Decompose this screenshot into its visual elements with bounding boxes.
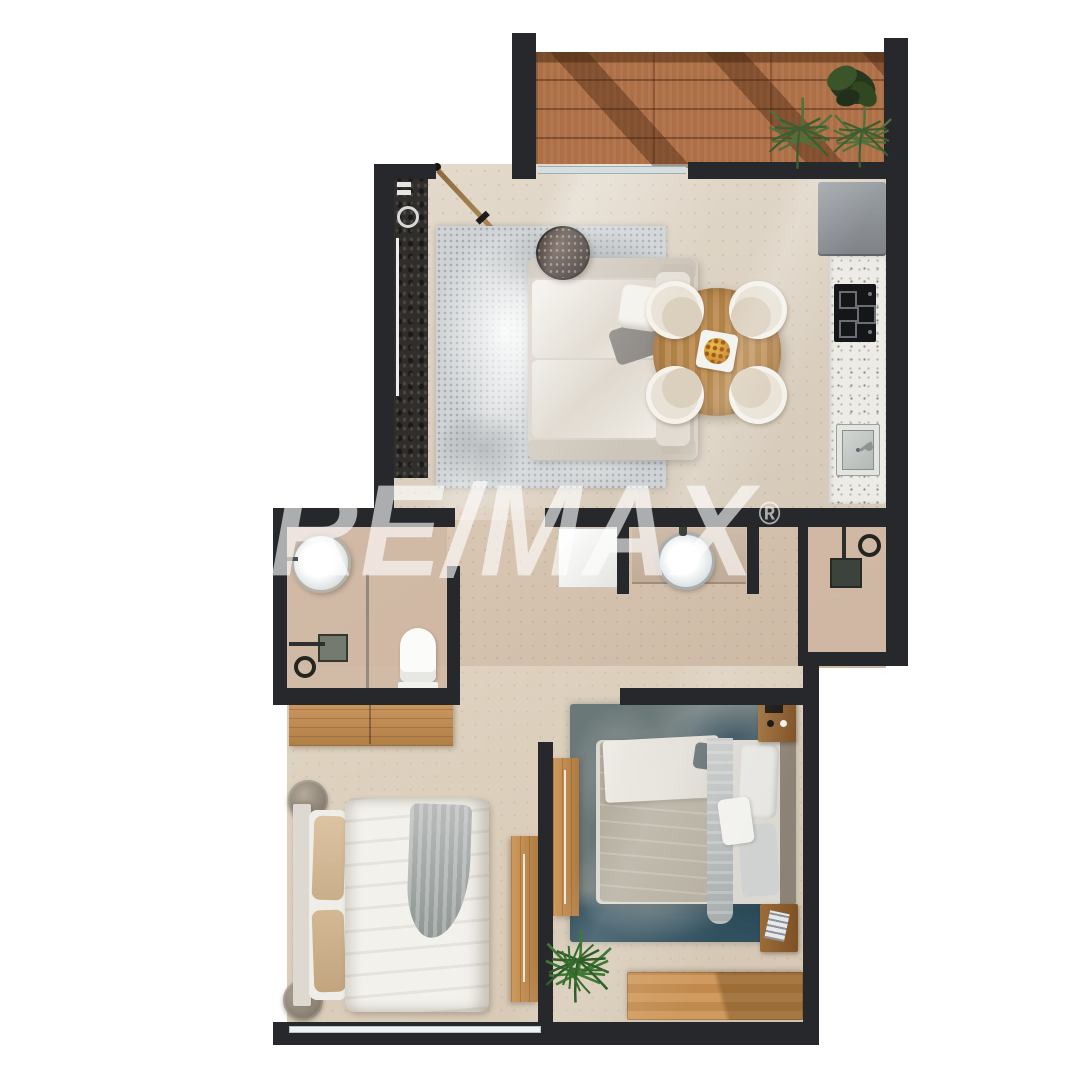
- chair-seat: [662, 368, 702, 408]
- wall: [886, 508, 908, 666]
- nightstand: [760, 904, 798, 952]
- cooktop: [834, 284, 876, 342]
- terrace-deck: [536, 52, 884, 168]
- bed2-headboard: [780, 738, 796, 904]
- media-shelf: [397, 190, 411, 195]
- wall: [886, 170, 908, 520]
- tv-screen: [396, 238, 399, 396]
- terrace-post-left: [512, 33, 536, 179]
- dining-chair: [729, 366, 787, 424]
- dining-chair: [729, 281, 787, 339]
- shower-knob: [294, 656, 316, 678]
- nightstand-items: [767, 720, 774, 727]
- nightstand-items: [765, 704, 783, 713]
- wall: [798, 524, 808, 666]
- watermark-brand: RE/MAX: [270, 458, 756, 604]
- dining-chair: [646, 281, 704, 339]
- bench-shade: [627, 972, 803, 1020]
- bedroom1-window: [289, 1026, 541, 1033]
- wall: [688, 162, 888, 179]
- chair-seat: [731, 297, 771, 337]
- burner: [839, 291, 857, 309]
- wall: [620, 688, 803, 705]
- chair-seat: [662, 297, 702, 337]
- dinner-plate: [695, 329, 739, 373]
- bed1-pillow: [312, 815, 347, 900]
- shower-drain: [318, 634, 348, 662]
- kitchen-sink: [836, 424, 880, 476]
- chair-seat: [731, 368, 771, 408]
- cooktop-knob: [868, 330, 872, 334]
- bedroom2-bench: [627, 972, 803, 1020]
- rain-shower-head: [830, 558, 862, 588]
- remax-watermark: RE/MAX®: [270, 462, 781, 599]
- bedroom1-dresser: [511, 836, 539, 1002]
- dresser-handle-line: [523, 854, 525, 982]
- side-table: [536, 226, 590, 280]
- wardrobe-divider-line: [369, 704, 371, 744]
- wall: [538, 742, 553, 1025]
- bed1-pillow: [312, 909, 347, 992]
- bed1: [293, 798, 489, 1012]
- bed2: [596, 736, 798, 908]
- burner: [839, 320, 857, 338]
- media-shelf: [397, 182, 411, 187]
- shower-arm: [289, 642, 325, 646]
- fruit-bowl: [702, 336, 732, 366]
- refrigerator: [818, 182, 886, 256]
- floor-plan: RE/MAX®: [0, 0, 1080, 1080]
- bedroom1-wardrobe: [289, 702, 453, 746]
- registered-mark-icon: ®: [758, 496, 780, 531]
- cooktop-knob: [868, 292, 872, 296]
- wall: [803, 664, 819, 1045]
- wardrobe-handle-line: [564, 770, 566, 904]
- toilet: [400, 628, 436, 682]
- speaker-icon: [397, 206, 419, 228]
- nightstand-items: [780, 720, 787, 727]
- terrace-post-right: [884, 38, 908, 176]
- wall: [273, 688, 460, 705]
- bed2-small-pillow: [717, 796, 755, 846]
- shower-room-knob: [858, 534, 881, 557]
- bedroom2-wardrobe: [553, 758, 579, 916]
- dining-chair: [646, 366, 704, 424]
- magazine: [764, 910, 789, 942]
- terrace-sliding-door: [538, 166, 686, 174]
- burner: [857, 305, 876, 324]
- sofa-seat-cushion: [532, 360, 658, 438]
